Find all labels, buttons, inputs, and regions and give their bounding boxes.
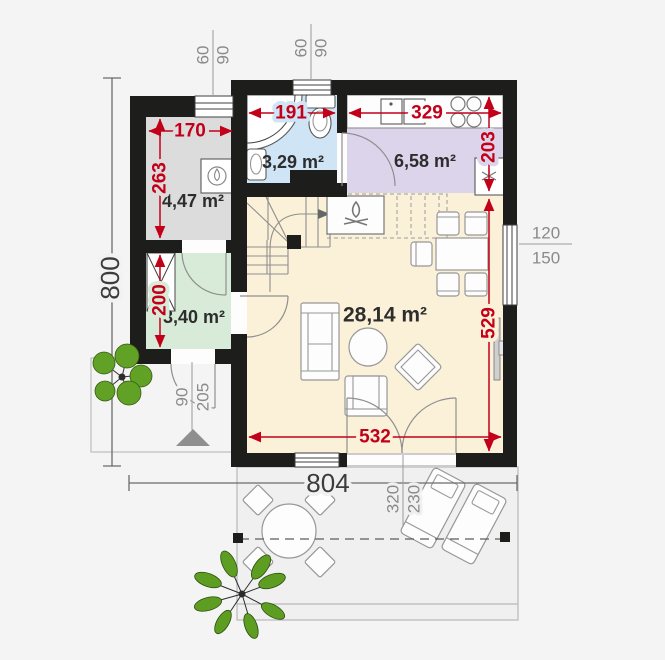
wall-top-main (231, 80, 517, 95)
dim-window1-h: 90 (214, 46, 233, 65)
window-top-left (195, 96, 233, 117)
dining-chair (411, 242, 432, 266)
wall-bathroom-east (337, 80, 347, 133)
dim-overall-width: 804 (306, 468, 349, 498)
dim-terrace-door-h: 230 (405, 485, 424, 513)
entry-direction-arrow (176, 429, 210, 446)
dining-chair (437, 273, 459, 296)
dining-chair (437, 212, 459, 235)
dim-kitchen-height: 203 (479, 131, 500, 163)
boiler (201, 159, 233, 193)
dim-window1-w: 60 (194, 46, 213, 65)
dim-tech-width: 170 (174, 121, 206, 142)
section-marker (500, 532, 510, 542)
entry-door-opening (171, 349, 215, 364)
wall-bathroom-south (247, 183, 347, 197)
dining-table (436, 238, 488, 270)
room-label-bathroom: 3,29 m² (262, 152, 324, 172)
room-label-kitchen: 6,58 m² (394, 151, 456, 171)
dim-side-window-w: 120 (532, 224, 560, 243)
terrace-table (262, 504, 316, 558)
section-marker (233, 533, 243, 543)
dim-side-window-h: 150 (532, 249, 560, 268)
room-label-living: 28,14 m² (343, 304, 427, 327)
dim-terrace-door-w: 320 (384, 485, 403, 513)
dim-entry-door-w: 90 (173, 388, 192, 407)
technical-fittings (201, 159, 233, 193)
window-top-bath (293, 80, 331, 95)
stair-post (287, 235, 301, 249)
dim-living-height: 529 (479, 307, 500, 339)
wall-hall-south-right (215, 349, 247, 364)
dim-window2-h: 90 (312, 39, 331, 58)
window-east (503, 225, 517, 305)
window-south (295, 453, 339, 467)
terrace (237, 467, 518, 620)
dim-hall-height: 200 (150, 284, 171, 316)
tech-door-opening (182, 240, 226, 253)
sofa (301, 303, 339, 380)
terrace-door-opening (347, 453, 456, 467)
dim-window2-w: 60 (292, 39, 311, 58)
dim-kitchen-width: 329 (411, 103, 443, 124)
hall-living-opening (231, 292, 247, 334)
dim-overall-height: 800 (95, 256, 125, 299)
tree-trunk (119, 374, 126, 381)
tree-trunk (239, 591, 246, 598)
room-label-technical: 4,47 m² (162, 191, 224, 211)
wall-west-left-wing (130, 96, 146, 364)
room-label-hall: 3,40 m² (163, 307, 225, 327)
dim-bath-width: 191 (275, 103, 307, 124)
floor-plan-page: 4,47 m² 3,29 m² 6,58 m² 3,40 m² 28,14 m²… (0, 0, 665, 660)
dining-chair (465, 212, 487, 235)
wall-west-main (231, 80, 247, 467)
dining-chair (465, 273, 487, 296)
coffee-table (349, 328, 387, 366)
dim-tech-height: 263 (150, 162, 171, 194)
floor-plan-svg: 4,47 m² 3,29 m² 6,58 m² 3,40 m² 28,14 m²… (0, 0, 665, 660)
dim-entry-door-h: 205 (194, 383, 213, 411)
dim-living-width: 532 (359, 427, 391, 448)
